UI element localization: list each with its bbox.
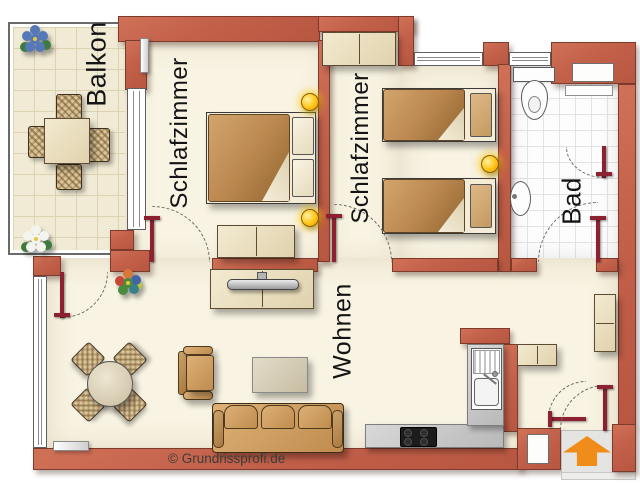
dresser	[217, 225, 295, 258]
wall	[398, 16, 414, 66]
wall	[392, 258, 498, 272]
pillow	[470, 93, 492, 137]
armchair-seat	[186, 355, 214, 391]
hall-wardrobe	[594, 294, 616, 352]
bedside-lamp-icon	[301, 93, 319, 111]
bedroom1-door-leaf	[150, 216, 154, 262]
door-handle-bar	[590, 216, 606, 220]
burner	[420, 429, 428, 437]
door-handle-bar	[596, 172, 612, 176]
window-bedroom1	[127, 88, 146, 230]
cabinet-divider	[537, 346, 538, 364]
wall	[618, 84, 636, 425]
tv-icon	[227, 279, 299, 290]
hall-cabinet	[517, 344, 557, 366]
room-label-wohnen: Wohnen	[329, 283, 358, 379]
balcony-door-leaf	[60, 272, 64, 318]
entry-step	[561, 472, 636, 480]
burner	[420, 438, 428, 446]
bathroom-door-leaf	[596, 216, 600, 262]
armchair-armrest	[183, 346, 213, 355]
burner	[404, 438, 412, 446]
wall-hall	[503, 344, 518, 432]
room-label-bad: Bad	[557, 177, 588, 225]
door-handle-bar	[326, 214, 342, 218]
sink-faucet	[512, 194, 517, 199]
pillow	[470, 184, 492, 228]
window-living	[33, 276, 47, 448]
wall-bathroom	[498, 64, 511, 272]
door-handle-bar	[597, 385, 613, 389]
burner	[404, 429, 412, 437]
copyright-text: © Grundrissprofi.de	[168, 451, 285, 466]
plant-icon	[31, 234, 41, 244]
sofa-cushion	[298, 405, 332, 429]
coffee-table	[252, 357, 308, 393]
bedside-lamp-icon	[301, 209, 319, 227]
wardrobe	[322, 32, 396, 66]
plant-icon	[30, 34, 40, 44]
wall-bedroom-divider	[318, 40, 330, 262]
radiator	[53, 441, 89, 451]
entry-niche	[527, 434, 549, 464]
sofa-armrest	[213, 410, 224, 448]
bedroom2-door-leaf	[332, 214, 336, 262]
wall	[110, 230, 134, 250]
balcony-chair	[56, 164, 82, 190]
toilet-bowl-inner	[528, 96, 541, 113]
room-label-schlafzimmer-2: Schlafzimmer	[347, 72, 375, 223]
door-handle-bar	[548, 411, 552, 427]
wall	[612, 424, 636, 472]
wall	[33, 256, 61, 276]
bathroom-niche	[572, 63, 614, 82]
pillow	[292, 117, 314, 155]
shower-shelf	[565, 85, 613, 96]
sofa-armrest	[332, 410, 343, 448]
sofa-cushion	[261, 405, 295, 429]
kitchen-faucet	[492, 371, 498, 377]
pillow	[292, 159, 314, 197]
door-handle-bar	[54, 313, 70, 317]
dining-table	[87, 361, 133, 407]
armchair-armrest	[183, 391, 213, 400]
floorplan: Balkon Schlafzimmer Schlafzimmer Bad Woh…	[0, 0, 640, 484]
dresser-divider	[256, 227, 257, 256]
wall	[110, 250, 150, 272]
sofa-cushion	[224, 405, 258, 429]
balcony-table	[44, 118, 90, 164]
bedside-lamp-icon	[481, 155, 499, 173]
room-label-balkon: Balkon	[82, 21, 113, 107]
balcony-chair	[56, 94, 82, 120]
window-bathroom	[509, 52, 551, 66]
door-handle-bar	[144, 216, 160, 220]
entry-door-leaf	[603, 385, 607, 431]
wall	[483, 42, 509, 66]
wardrobe-divider	[359, 34, 360, 64]
wall-kitchen-stub	[460, 328, 510, 344]
wall	[511, 258, 537, 272]
radiator	[140, 38, 149, 73]
flower-bouquet-icon	[123, 278, 133, 288]
room-label-schlafzimmer-1: Schlafzimmer	[166, 57, 194, 208]
cabinet-divider	[596, 323, 614, 324]
window-bedroom2	[414, 52, 483, 66]
